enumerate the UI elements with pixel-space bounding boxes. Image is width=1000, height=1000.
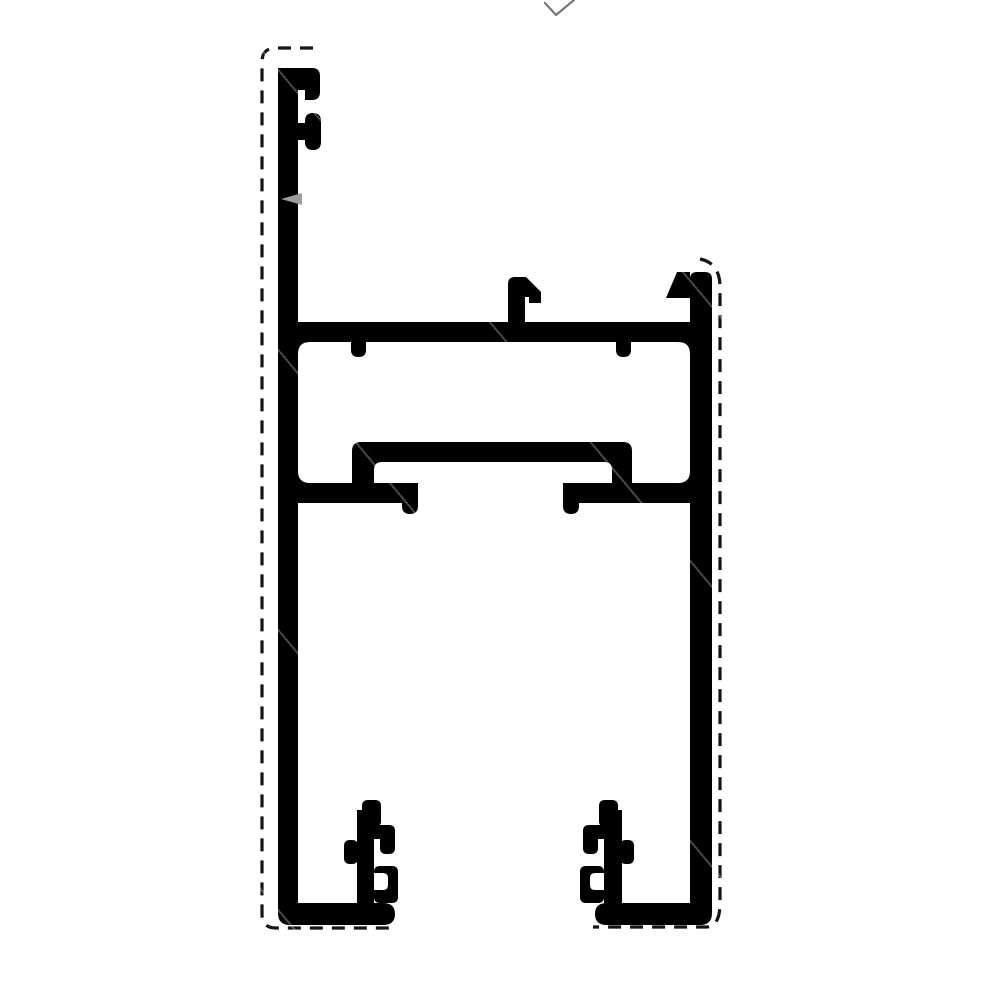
right-wall — [690, 272, 712, 910]
web-nub-right — [616, 342, 631, 357]
left-wall — [278, 68, 298, 910]
under-hat-gap — [418, 483, 563, 503]
left-rib-finger — [374, 825, 395, 854]
profile-drawing — [0, 0, 1000, 1000]
left-rib-top-knob — [362, 800, 381, 827]
right-rib-top-knob — [599, 800, 618, 827]
glazing-hat-cavity — [374, 462, 612, 483]
gap-lip-left — [402, 494, 418, 514]
gap-lip-right — [563, 494, 579, 514]
right-rib-side-knob — [620, 840, 634, 864]
left-rib-hook-notch — [374, 873, 388, 890]
right-rib-finger — [583, 825, 604, 854]
right-top-flag — [666, 272, 690, 298]
profile-drawing-canvas — [0, 0, 1000, 1000]
left-rib-side-knob — [344, 840, 358, 864]
web-nub-left — [351, 342, 366, 357]
left-wall-knob — [296, 113, 321, 150]
checkmark-icon — [545, 0, 574, 15]
right-rib-hook-notch — [590, 873, 604, 890]
